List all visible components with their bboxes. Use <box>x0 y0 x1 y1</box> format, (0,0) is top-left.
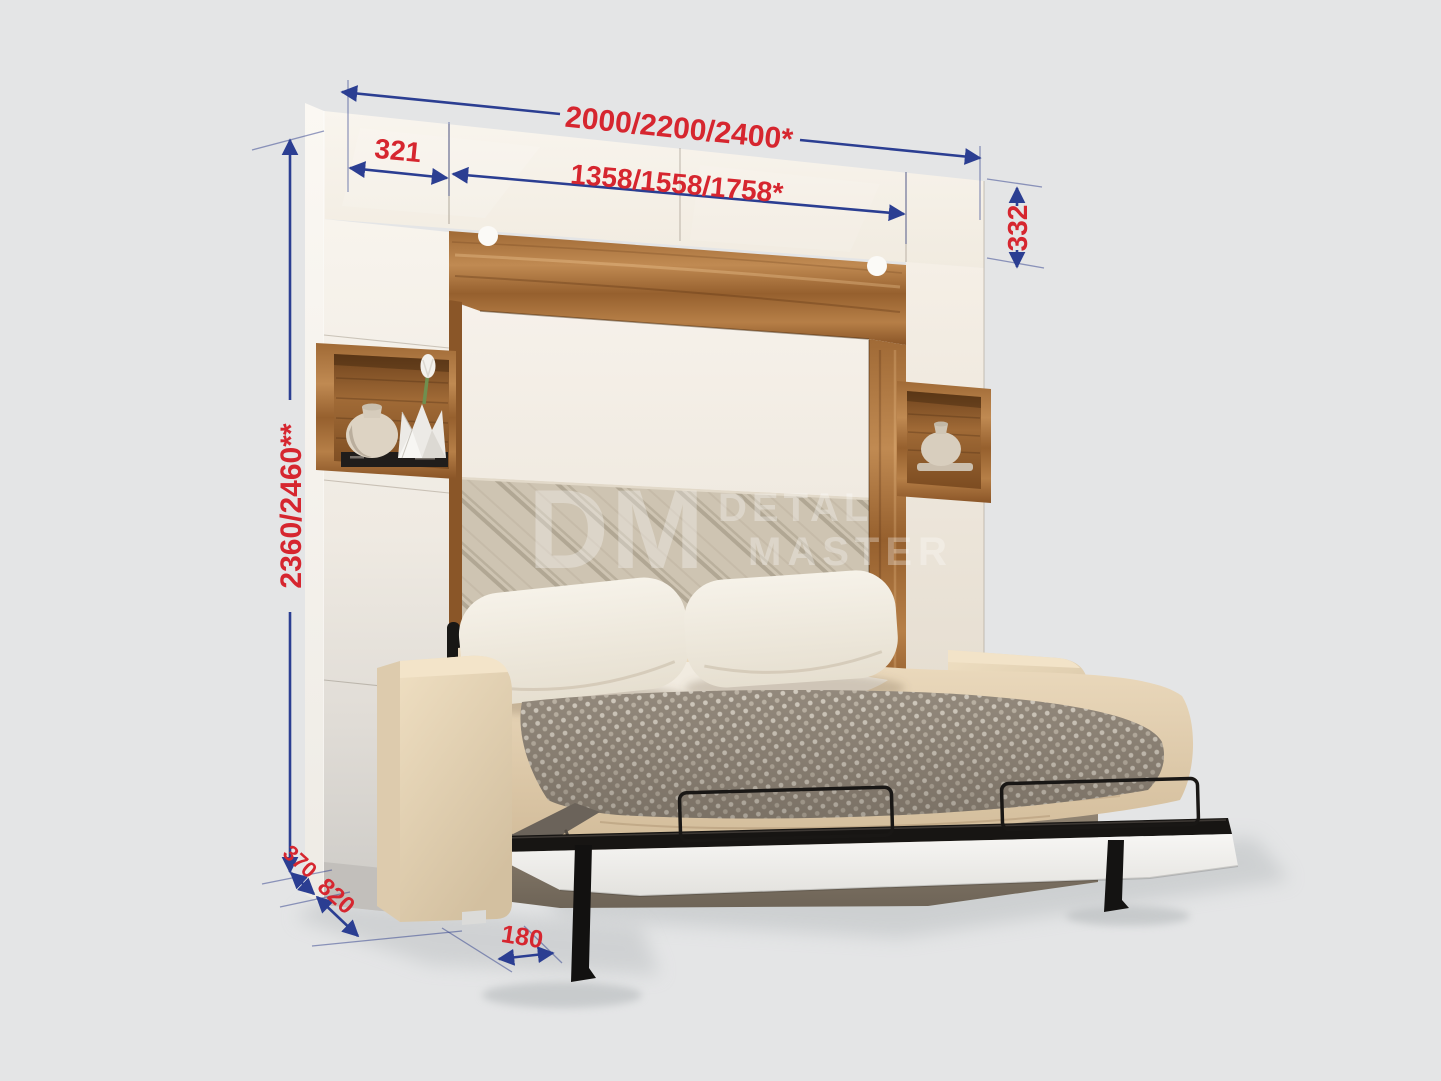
dim-side-cabinet-width-label: 321 <box>373 133 422 168</box>
sofa-foot <box>462 910 486 925</box>
dim-upper-height-label: 332 <box>1002 205 1033 252</box>
watermark-logo: DM <box>528 467 706 592</box>
product-dimension-diagram: DM DETAL MASTER <box>0 0 1441 1081</box>
left-shelf-niche <box>316 343 456 479</box>
watermark-line1: DETAL <box>718 486 873 530</box>
dim-total-height-label: 2360/2460** <box>275 423 308 588</box>
light-notch <box>478 226 498 246</box>
light-notch <box>867 256 887 276</box>
watermark-line2: MASTER <box>748 530 953 574</box>
right-shelf-niche <box>897 381 991 503</box>
pillow-right <box>681 568 900 691</box>
sofa-armrest-left <box>377 656 512 925</box>
scene-canvas: DM DETAL MASTER <box>0 0 1441 1081</box>
